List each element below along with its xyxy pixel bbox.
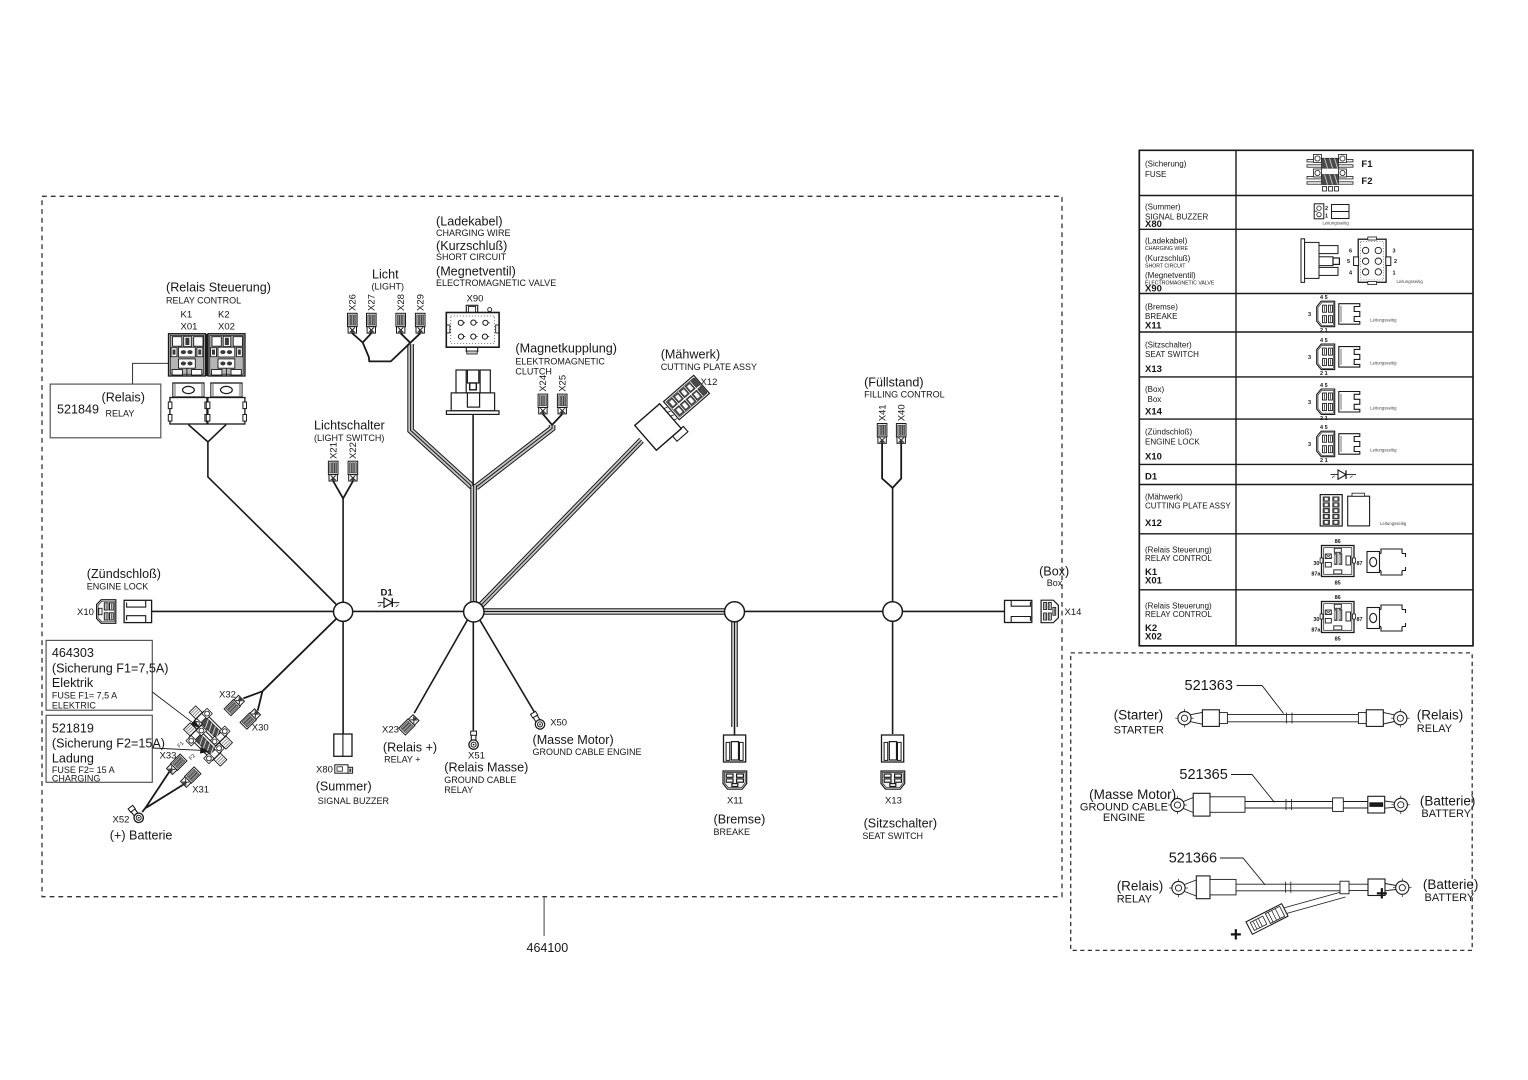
svg-text:1: 1 [1393, 270, 1396, 276]
svg-text:+: + [1376, 883, 1388, 905]
svg-text:X14: X14 [1065, 607, 1082, 618]
svg-text:X32: X32 [219, 690, 236, 701]
svg-text:4 5: 4 5 [1320, 295, 1328, 301]
svg-text:(LIGHT SWITCH): (LIGHT SWITCH) [314, 433, 384, 443]
svg-text:X29: X29 [415, 294, 426, 311]
svg-text:(Kurzschluß): (Kurzschluß) [436, 239, 507, 253]
svg-text:X14: X14 [1145, 407, 1163, 418]
svg-text:X13: X13 [1145, 364, 1162, 375]
svg-text:X28: X28 [396, 294, 407, 311]
svg-text:1: 1 [1325, 214, 1328, 220]
svg-text:SEAT SWITCH: SEAT SWITCH [1145, 350, 1199, 359]
svg-text:(LIGHT): (LIGHT) [372, 282, 405, 292]
svg-text:(Megnetventil): (Megnetventil) [1145, 271, 1196, 280]
svg-text:X13: X13 [885, 795, 902, 806]
svg-text:RELAY: RELAY [1417, 723, 1453, 735]
svg-text:521363: 521363 [1185, 678, 1233, 694]
svg-text:BATTERY: BATTERY [1421, 808, 1471, 820]
svg-text:3: 3 [1308, 400, 1311, 406]
svg-text:ENGINE: ENGINE [1103, 812, 1145, 824]
svg-text:X31: X31 [192, 784, 209, 795]
svg-text:X12: X12 [1145, 518, 1162, 529]
svg-text:2 1: 2 1 [1320, 328, 1328, 334]
svg-text:FUSE: FUSE [1145, 170, 1166, 179]
svg-text:SHORT CIRCUIT: SHORT CIRCUIT [436, 252, 507, 262]
svg-text:464303: 464303 [52, 646, 94, 660]
svg-text:(Box): (Box) [1145, 385, 1164, 394]
svg-text:Lichtschalter: Lichtschalter [314, 419, 385, 433]
svg-text:(Bremse): (Bremse) [1145, 302, 1178, 311]
svg-text:Leitungsseitig: Leitungsseitig [1370, 360, 1397, 365]
svg-text:87a: 87a [1311, 628, 1321, 634]
svg-text:K1: K1 [181, 310, 193, 321]
svg-text:FUSE F1= 7,5 A: FUSE F1= 7,5 A [52, 691, 117, 701]
svg-text:(Starter): (Starter) [1114, 708, 1164, 723]
svg-text:F2: F2 [1361, 176, 1372, 187]
svg-text:K2: K2 [218, 310, 230, 321]
svg-text:3: 3 [1308, 442, 1311, 448]
svg-text:+: + [1230, 924, 1242, 946]
svg-text:RELAY: RELAY [1117, 894, 1153, 906]
svg-text:Leitungsseitig: Leitungsseitig [1323, 221, 1350, 226]
svg-text:ELECTROMAGNETIC VALVE: ELECTROMAGNETIC VALVE [436, 278, 556, 288]
svg-text:GROUND CABLE ENGINE: GROUND CABLE ENGINE [533, 747, 642, 757]
svg-text:X11: X11 [727, 795, 743, 806]
svg-text:CUTTING PLATE ASSY: CUTTING PLATE ASSY [1145, 501, 1231, 510]
svg-text:X01: X01 [1145, 576, 1163, 587]
svg-text:(Relais Steuerung): (Relais Steuerung) [166, 281, 271, 295]
svg-text:(Ladekabel): (Ladekabel) [436, 215, 503, 229]
svg-text:RELAY CONTROL: RELAY CONTROL [1145, 554, 1212, 563]
svg-text:X26: X26 [348, 294, 359, 311]
svg-text:5: 5 [1347, 259, 1350, 265]
svg-text:ELEKTRIC: ELEKTRIC [52, 701, 97, 711]
svg-text:(Box): (Box) [1039, 564, 1069, 578]
svg-text:X40: X40 [897, 404, 908, 421]
svg-text:Box: Box [1047, 578, 1063, 588]
svg-text:X11: X11 [1145, 320, 1162, 331]
svg-text:85: 85 [1335, 637, 1341, 643]
svg-text:87a: 87a [1311, 572, 1321, 578]
svg-text:(Mähwerk): (Mähwerk) [1145, 492, 1183, 501]
svg-text:SHORT CIRCUIT: SHORT CIRCUIT [1145, 264, 1186, 270]
svg-text:4 5: 4 5 [1320, 383, 1328, 389]
svg-text:D1: D1 [381, 587, 394, 598]
svg-text:Leitungsseitig: Leitungsseitig [1370, 405, 1397, 410]
svg-text:3: 3 [1308, 312, 1311, 318]
svg-text:RELAY CONTROL: RELAY CONTROL [166, 296, 241, 306]
svg-text:X41: X41 [877, 404, 888, 421]
svg-text:3: 3 [1308, 355, 1311, 361]
svg-text:(Batterie): (Batterie) [1423, 877, 1479, 892]
svg-text:ENGINE LOCK: ENGINE LOCK [87, 582, 149, 592]
svg-text:X24: X24 [538, 375, 549, 392]
svg-text:(Sitzschalter): (Sitzschalter) [864, 817, 937, 831]
svg-text:X02: X02 [1145, 632, 1162, 643]
svg-text:CHARGING: CHARGING [52, 773, 101, 783]
svg-text:(Masse Motor): (Masse Motor) [1089, 787, 1176, 802]
svg-text:(Sicherung F2=15A): (Sicherung F2=15A) [52, 736, 165, 750]
svg-text:X80: X80 [316, 764, 333, 775]
svg-text:Box: Box [1148, 395, 1162, 404]
svg-text:RELAY: RELAY [444, 785, 473, 795]
svg-text:3: 3 [1393, 249, 1396, 255]
svg-text:Leitungsseitig: Leitungsseitig [1380, 521, 1407, 526]
svg-text:(Relais +): (Relais +) [383, 740, 437, 754]
svg-text:X90: X90 [1145, 284, 1162, 295]
svg-text:X30: X30 [252, 723, 269, 734]
svg-text:2 1: 2 1 [1320, 458, 1328, 464]
svg-text:X02: X02 [218, 322, 235, 333]
svg-text:86: 86 [1335, 539, 1341, 545]
svg-text:X10: X10 [77, 607, 94, 618]
svg-text:Leitungsseitig: Leitungsseitig [1397, 279, 1424, 284]
svg-text:85: 85 [1335, 581, 1341, 587]
svg-text:30: 30 [1313, 617, 1319, 623]
svg-text:X90: X90 [467, 293, 484, 304]
svg-text:(Summer): (Summer) [1145, 203, 1181, 212]
svg-text:87: 87 [1357, 617, 1363, 623]
svg-text:CHARGING WIRE: CHARGING WIRE [436, 228, 511, 238]
svg-text:(Bremse): (Bremse) [714, 813, 766, 827]
svg-text:X27: X27 [367, 294, 378, 311]
svg-text:CHARGING WIRE: CHARGING WIRE [1145, 246, 1188, 252]
svg-text:X22: X22 [348, 442, 359, 459]
svg-text:2 1: 2 1 [1320, 371, 1328, 377]
svg-text:X12: X12 [701, 377, 718, 388]
svg-text:(Zündschloß): (Zündschloß) [1145, 427, 1192, 436]
svg-text:(Relais): (Relais) [102, 391, 145, 405]
svg-text:521819: 521819 [52, 721, 94, 735]
svg-text:521365: 521365 [1179, 767, 1227, 783]
svg-text:Licht: Licht [372, 268, 399, 282]
svg-text:F1: F1 [1361, 159, 1373, 170]
svg-text:2 1: 2 1 [1320, 416, 1328, 422]
svg-text:(Relais): (Relais) [1417, 708, 1464, 723]
svg-text:BATTERY: BATTERY [1425, 892, 1475, 904]
svg-text:RELAY +: RELAY + [384, 755, 420, 765]
svg-text:6: 6 [1349, 249, 1352, 255]
svg-text:Leitungsseitig: Leitungsseitig [1370, 448, 1397, 453]
svg-text:464100: 464100 [527, 941, 569, 955]
svg-text:(Sitzschalter): (Sitzschalter) [1145, 341, 1192, 350]
svg-text:86: 86 [1335, 595, 1341, 601]
svg-text:87: 87 [1357, 561, 1363, 567]
svg-text:4 5: 4 5 [1320, 425, 1328, 431]
svg-text:(Relais): (Relais) [1117, 878, 1164, 893]
svg-text:SIGNAL BUZZER: SIGNAL BUZZER [318, 796, 390, 806]
svg-text:RELAY: RELAY [106, 409, 135, 419]
svg-text:X50: X50 [550, 717, 567, 728]
svg-text:X25: X25 [557, 375, 568, 392]
svg-text:521849: 521849 [57, 403, 99, 417]
svg-text:(Megnetventil): (Megnetventil) [436, 265, 516, 279]
svg-text:Ladung: Ladung [52, 751, 94, 765]
svg-text:(Sicherung): (Sicherung) [1145, 160, 1187, 169]
svg-text:(+) Batterie: (+) Batterie [110, 828, 173, 842]
svg-text:(Kurzschluß): (Kurzschluß) [1145, 254, 1191, 263]
svg-text:(Sicherung F1=7,5A): (Sicherung F1=7,5A) [52, 662, 169, 676]
svg-text:ELEKTROMAGNETIC: ELEKTROMAGNETIC [515, 357, 605, 367]
svg-text:(Relais Masse): (Relais Masse) [444, 760, 528, 774]
svg-text:(Summer): (Summer) [316, 780, 372, 794]
svg-text:X23: X23 [382, 725, 399, 736]
svg-text:Elektrik: Elektrik [52, 676, 94, 690]
svg-text:X01: X01 [181, 322, 198, 333]
svg-text:X21: X21 [328, 442, 339, 459]
svg-text:GROUND CABLE: GROUND CABLE [444, 775, 516, 785]
svg-text:BREAKE: BREAKE [714, 827, 751, 837]
svg-text:FILLING CONTROL: FILLING CONTROL [864, 390, 945, 400]
svg-text:(Zündschloß): (Zündschloß) [87, 567, 161, 581]
svg-text:X80: X80 [1145, 219, 1162, 230]
svg-text:X33: X33 [160, 750, 177, 761]
svg-text:X10: X10 [1145, 452, 1162, 463]
svg-text:2: 2 [1325, 206, 1328, 212]
svg-text:X52: X52 [113, 814, 130, 825]
svg-text:SEAT SWITCH: SEAT SWITCH [862, 831, 923, 841]
svg-text:RELAY CONTROL: RELAY CONTROL [1145, 610, 1212, 619]
svg-text:CUTTING PLATE ASSY: CUTTING PLATE ASSY [661, 362, 757, 372]
svg-text:2: 2 [1394, 259, 1397, 265]
svg-text:(Magnetkupplung): (Magnetkupplung) [515, 342, 617, 356]
svg-text:(Masse Motor): (Masse Motor) [533, 733, 614, 747]
svg-text:4 5: 4 5 [1320, 338, 1328, 344]
svg-text:D1: D1 [1145, 471, 1158, 482]
svg-text:30: 30 [1313, 561, 1319, 567]
svg-text:(Füllstand): (Füllstand) [864, 376, 924, 390]
svg-text:(Mähwerk): (Mähwerk) [661, 348, 720, 362]
svg-text:(Batterie): (Batterie) [1420, 793, 1476, 808]
svg-text:Leitungsseitig: Leitungsseitig [1370, 318, 1397, 323]
svg-text:(Ladekabel): (Ladekabel) [1145, 237, 1188, 246]
svg-text:521366: 521366 [1169, 851, 1217, 867]
svg-text:ENGINE LOCK: ENGINE LOCK [1145, 437, 1200, 446]
svg-text:STARTER: STARTER [1114, 725, 1164, 737]
